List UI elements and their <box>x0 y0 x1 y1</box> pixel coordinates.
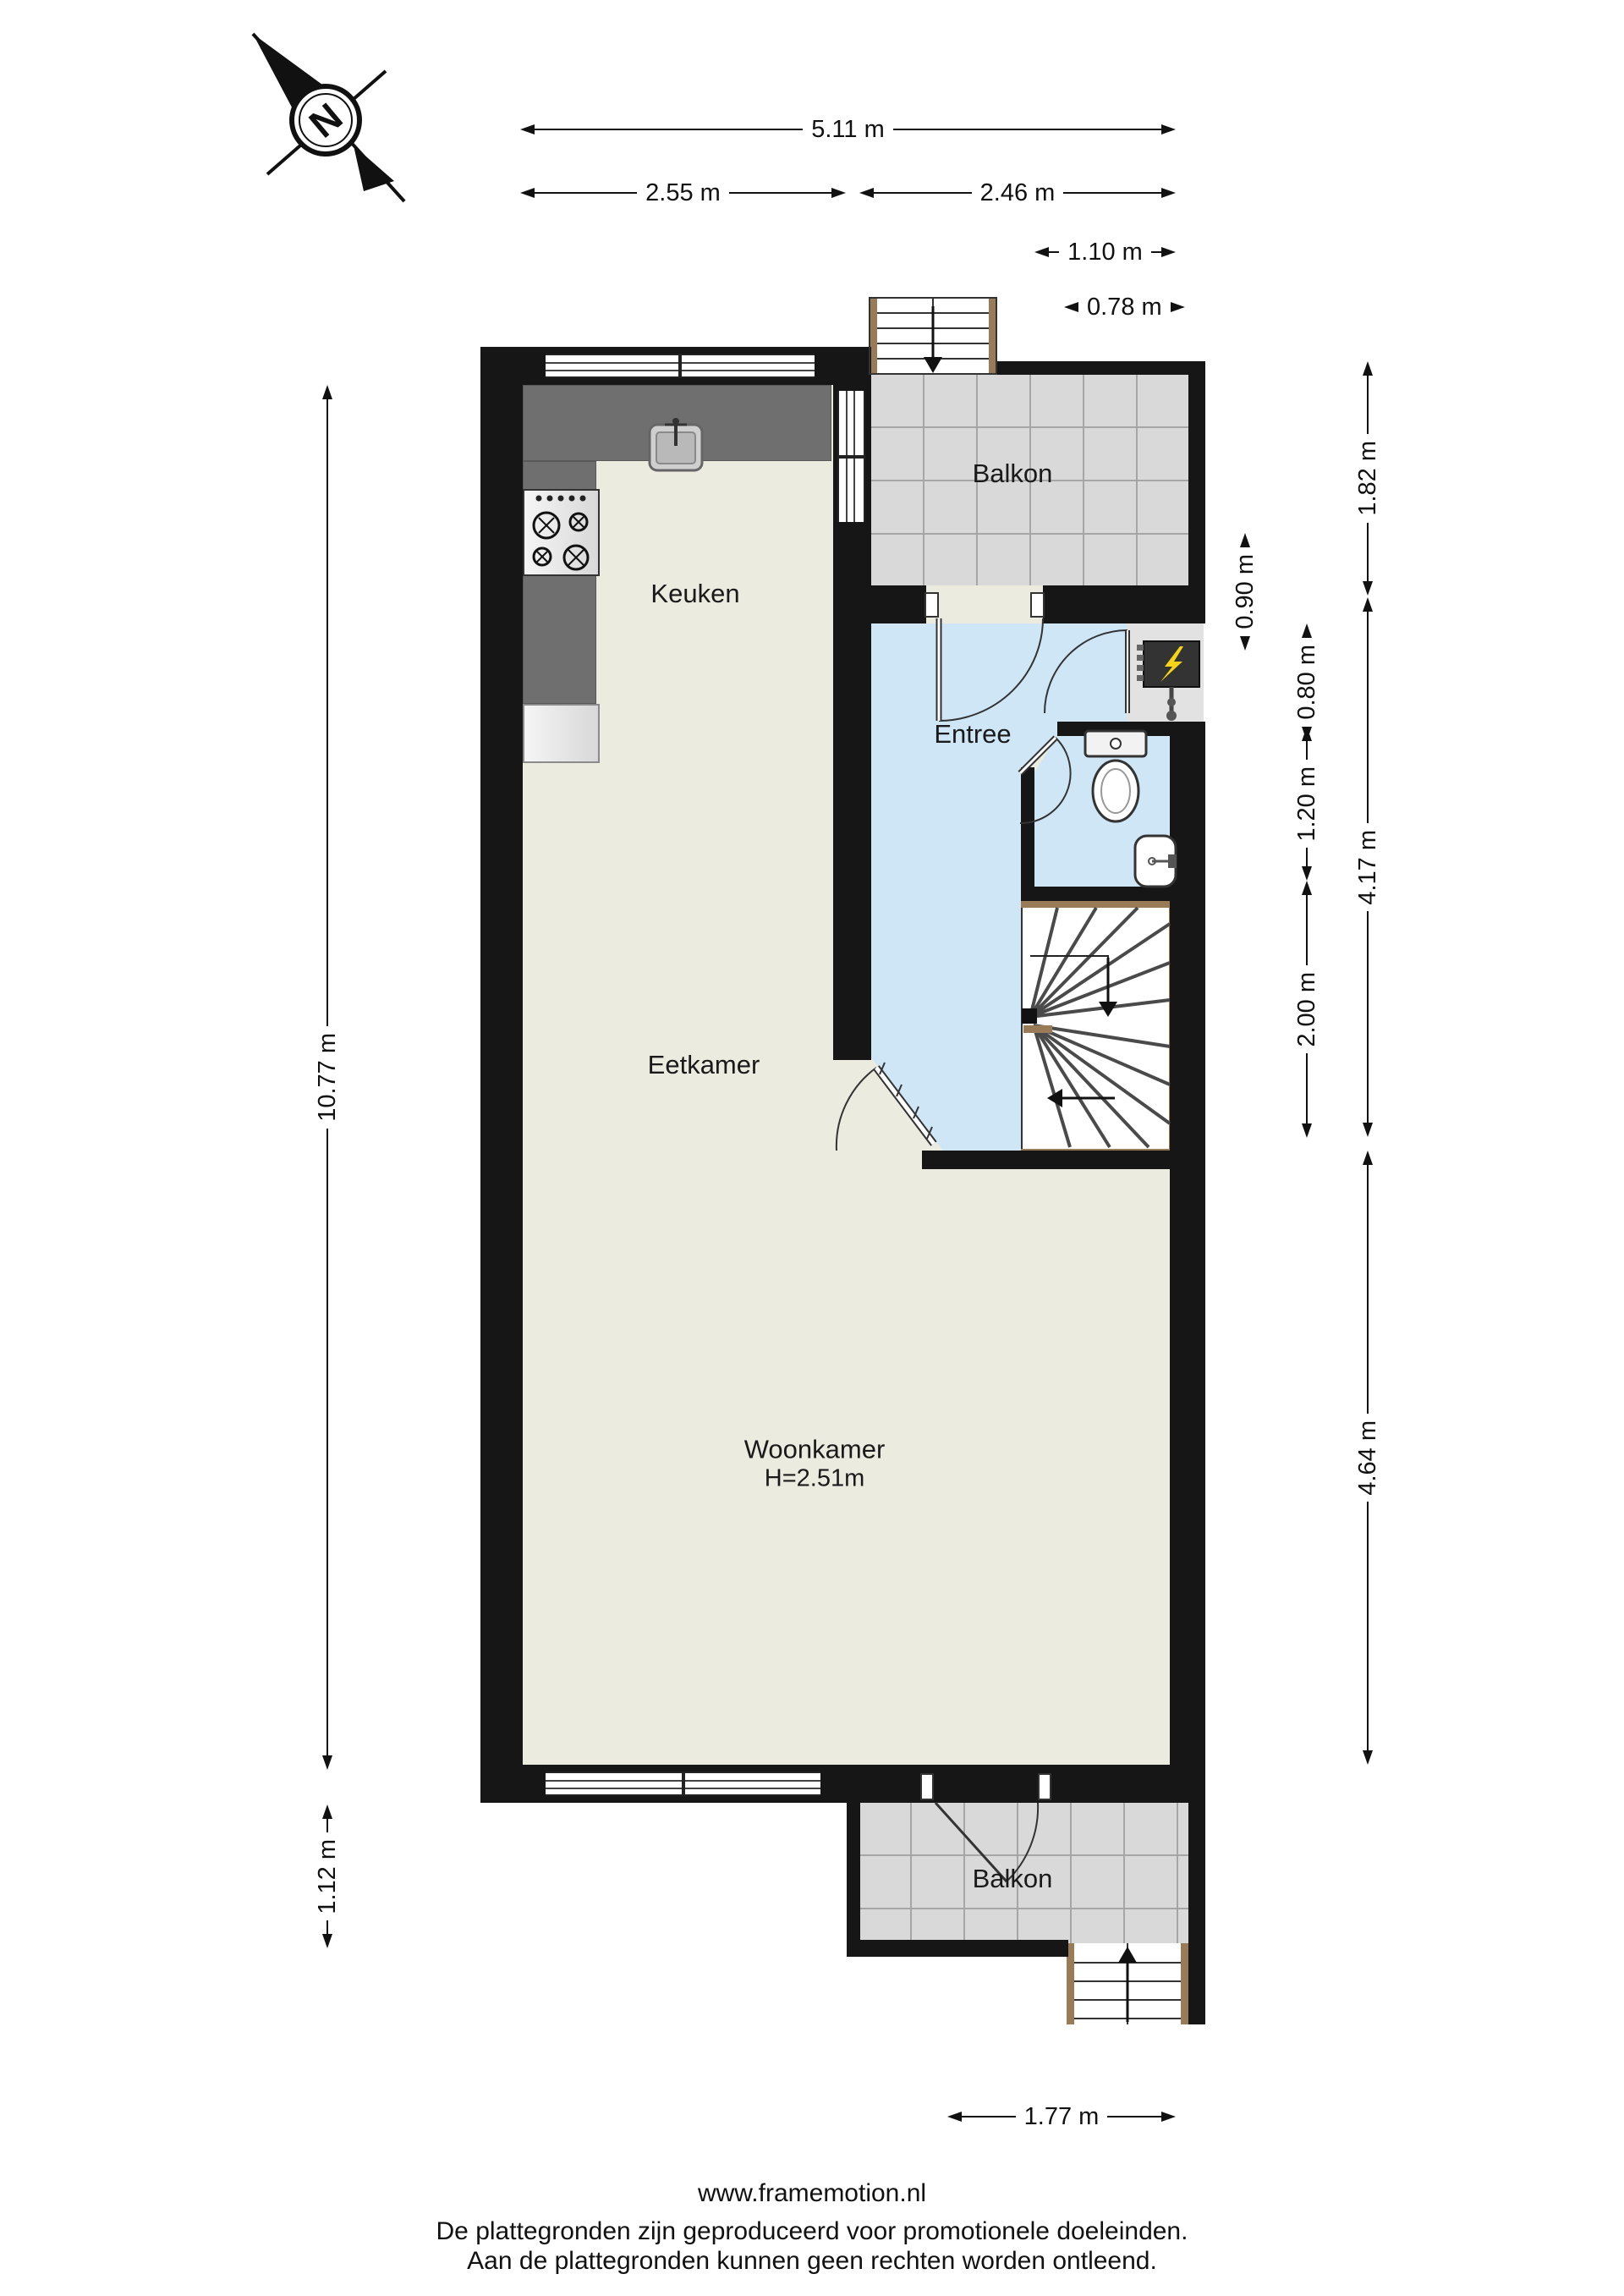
window <box>546 1771 820 1796</box>
dimension-label: 4.64 m <box>1354 1414 1382 1502</box>
door-post <box>1030 592 1045 618</box>
wall <box>1021 887 1205 901</box>
balcony-parapet <box>1188 1803 1205 2024</box>
wall <box>871 585 926 623</box>
dimension-right-balcony-top: 1.82 m <box>1352 361 1383 596</box>
dimension-label: 0.80 m <box>1293 638 1321 727</box>
balcony-parapet <box>1188 361 1205 590</box>
floor-plan: N <box>0 0 1624 2296</box>
footer-disclaimer-2: Aan de plattegronden kunnen geen rechten… <box>0 2247 1624 2276</box>
dimension-right-meter: 0.80 m <box>1292 623 1322 727</box>
dimension-label: 1.10 m <box>1059 239 1151 266</box>
dimension-top-door: 1.10 m <box>1034 237 1176 267</box>
wall <box>922 1151 1182 1169</box>
dimension-top-small: 0.78 m <box>1064 292 1179 322</box>
dimension-right-stairs: 2.00 m <box>1292 881 1322 1138</box>
dimension-label: 0.90 m <box>1232 547 1259 636</box>
dimension-label: 1.20 m <box>1293 760 1321 849</box>
wall <box>833 623 871 1060</box>
kitchen-counter-top <box>523 385 831 461</box>
room-label-woonkamer: Woonkamer H=2.51m <box>744 1435 886 1493</box>
dimension-label: 2.00 m <box>1293 965 1321 1054</box>
room-height-note: H=2.51m <box>744 1465 886 1493</box>
dimension-left-total: 10.77 m <box>312 385 343 1770</box>
exterior-stairs-bottom <box>1067 1943 1188 2024</box>
room-label-balkon-bottom: Balkon <box>973 1864 1053 1894</box>
room-label-entree: Entree <box>934 719 1011 750</box>
stove <box>523 489 600 576</box>
dimension-right-wc-width: 0.90 m <box>1230 533 1260 614</box>
wall <box>1170 723 1205 1803</box>
dimension-label: 1.12 m <box>314 1832 342 1921</box>
door-post <box>924 592 939 618</box>
room-label-keuken: Keuken <box>650 579 739 609</box>
compass-north-label: N <box>301 94 351 146</box>
balcony-parapet <box>996 361 1205 375</box>
dimension-top-left: 2.55 m <box>520 178 846 208</box>
dimension-label: 5.11 m <box>803 116 893 144</box>
dimension-bottom-balcony: 1.77 m <box>947 2101 1176 2132</box>
footer-disclaimer-1: De plattegronden zijn geproduceerd voor … <box>0 2217 1624 2246</box>
room-label-eetkamer: Eetkamer <box>648 1050 760 1080</box>
footer-url: www.framemotion.nl <box>0 2179 1624 2208</box>
room-label-balkon-top: Balkon <box>973 459 1053 489</box>
door-post <box>920 1773 934 1800</box>
window <box>546 354 815 378</box>
exterior-stairs-top <box>870 298 996 374</box>
spiral-staircase <box>1021 901 1176 1156</box>
dimension-label: 2.46 m <box>972 179 1064 207</box>
compass-rose: N <box>253 34 404 201</box>
balcony-parapet <box>847 1940 1068 1957</box>
dimension-top-right: 2.46 m <box>859 178 1176 208</box>
dimension-right-entry-depth: 4.17 m <box>1352 597 1383 1137</box>
wall <box>1021 767 1034 901</box>
window <box>837 391 865 522</box>
wall <box>1043 585 1205 623</box>
kitchen-cabinet <box>523 704 600 763</box>
wall <box>480 347 523 1803</box>
meter-cabinet-niche <box>1127 623 1204 723</box>
dimension-right-wc: 1.20 m <box>1292 727 1322 881</box>
dimension-left-balcony: 1.12 m <box>312 1804 343 1948</box>
dimension-label: 1.82 m <box>1354 434 1382 523</box>
balcony-parapet <box>847 1803 860 1953</box>
dimension-right-living: 4.64 m <box>1352 1151 1383 1765</box>
door-post <box>1038 1773 1051 1800</box>
dimension-label: 2.55 m <box>637 179 729 207</box>
dimension-label: 4.17 m <box>1354 823 1382 912</box>
dimension-label: 0.78 m <box>1078 294 1171 321</box>
wall <box>1057 722 1205 736</box>
dimension-label: 1.77 m <box>1016 2103 1108 2131</box>
dimension-label: 10.77 m <box>314 1026 342 1129</box>
dimension-top-total: 5.11 m <box>520 114 1176 145</box>
